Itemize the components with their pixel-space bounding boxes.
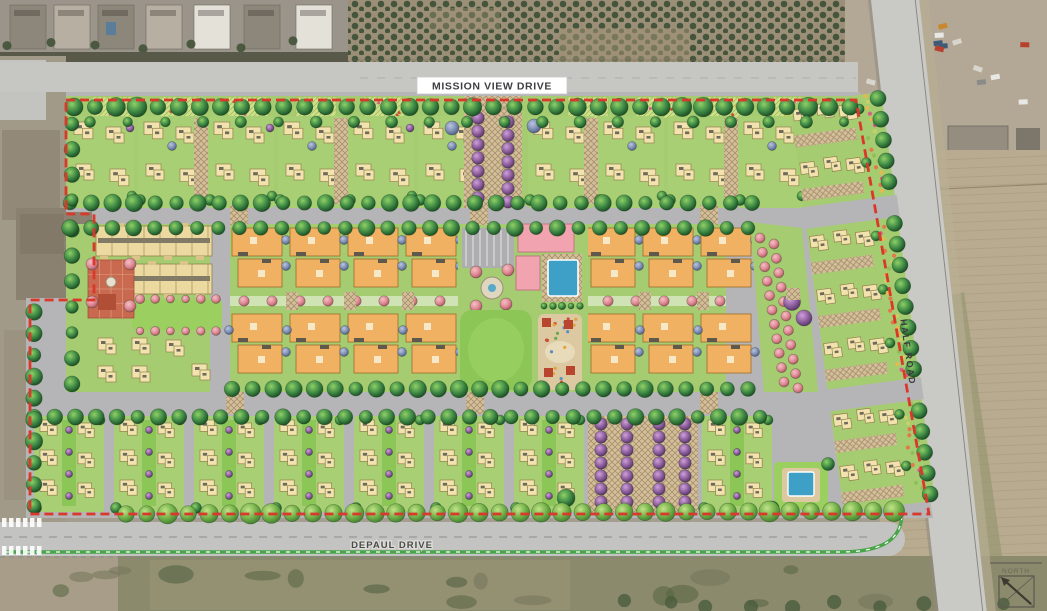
site-plan-canvas: MISSION VIEW DRIVE DEPAUL DRIVE HALF ROA… xyxy=(0,0,1047,611)
site-area xyxy=(25,89,939,523)
depaul-label-text: DEPAUL DRIVE xyxy=(351,540,433,551)
mission-view-label: MISSION VIEW DRIVE xyxy=(417,77,567,94)
mission-view-label-text: MISSION VIEW DRIVE xyxy=(432,81,552,93)
site-plan-image: MISSION VIEW DRIVE DEPAUL DRIVE HALF ROA… xyxy=(0,0,1047,611)
north-arrow-text: NORTH xyxy=(1002,568,1030,575)
housing-row-north xyxy=(65,116,808,208)
bottom-field xyxy=(0,556,1047,611)
depaul-label: DEPAUL DRIVE xyxy=(351,540,433,551)
amenity-core xyxy=(458,224,588,392)
